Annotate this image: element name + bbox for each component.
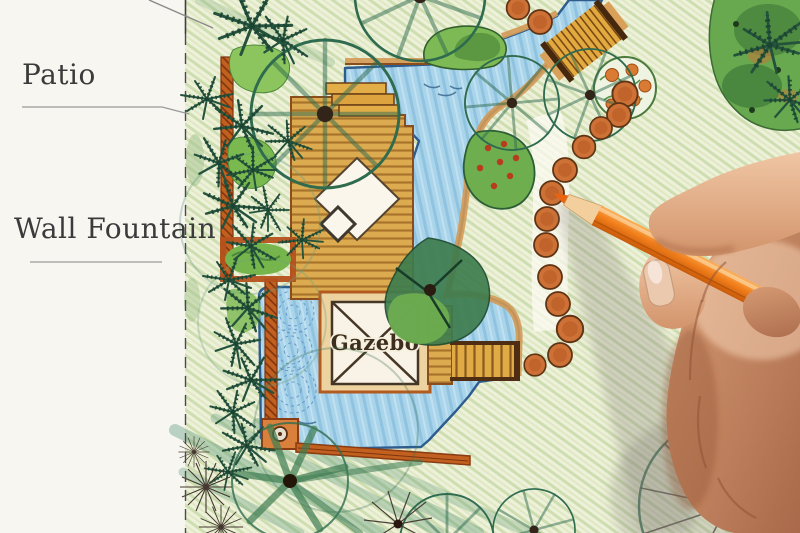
- stepping-stone: [540, 181, 564, 205]
- stepping-stone: [553, 158, 577, 182]
- landscape-plan-photo: Gazebo: [0, 0, 800, 533]
- stepping-stone: [535, 207, 559, 231]
- screenshot-root: Gazebo: [0, 0, 800, 533]
- boardwalk: [450, 341, 520, 381]
- stepping-stone: [546, 292, 570, 316]
- stepping-stone: [573, 136, 596, 159]
- wall-fountain-label: Wall Fountain: [14, 212, 216, 245]
- patio-label: Patio: [22, 58, 96, 91]
- stepping-stone: [534, 233, 558, 257]
- stepping-stone: [538, 265, 562, 289]
- stepping-stone: [548, 343, 572, 367]
- stepping-stone: [557, 316, 583, 342]
- stepping-stone: [524, 354, 546, 376]
- stepping-stone: [507, 0, 530, 19]
- tree-symbol: [251, 40, 399, 188]
- stepping-stone: [590, 117, 612, 139]
- stepping-stone: [528, 10, 552, 34]
